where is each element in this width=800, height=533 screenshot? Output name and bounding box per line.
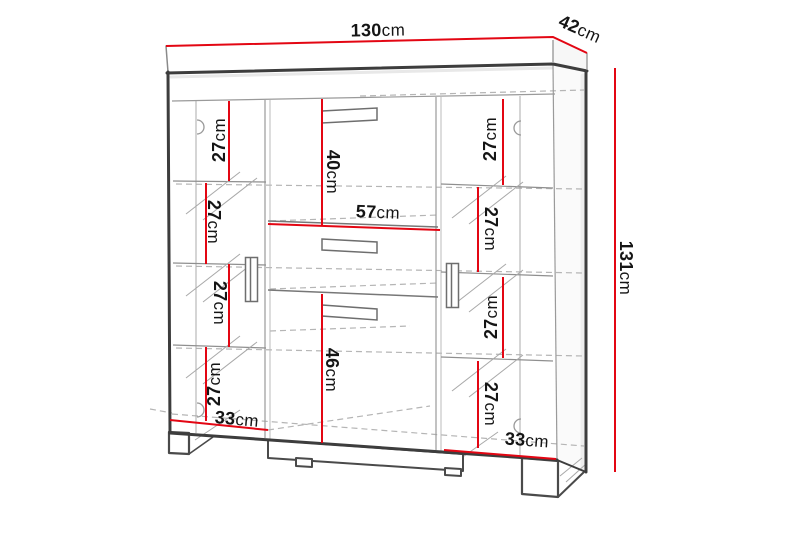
left-shelf-unit-4: cm [205, 362, 224, 386]
width-label: 130cm [351, 21, 406, 40]
plinth-foot-right [445, 468, 461, 476]
right-width-label: 33cm [504, 429, 549, 450]
height-value: 131 [616, 241, 636, 272]
plinth-foot-left [296, 458, 312, 467]
left-shelf-unit-2: cm [204, 220, 223, 244]
lower-middle-unit: cm [322, 368, 341, 392]
left-width-unit: cm [235, 410, 260, 431]
width-unit: cm [381, 21, 405, 40]
left-shelf-label-1: 27cm [210, 118, 228, 162]
right-shelf-label-1: 27cm [481, 117, 499, 161]
left-shelf-label-2: 27cm [205, 200, 223, 244]
right-door-handle [447, 264, 459, 308]
left-door-handle [246, 258, 258, 302]
left-shelf-label-3: 27cm [211, 281, 229, 325]
left-shelf-value-4: 27 [204, 386, 224, 407]
top-drawer-handle [322, 108, 377, 123]
left-shelf-value-2: 27 [204, 200, 224, 221]
height-label: 131cm [617, 241, 635, 296]
diagram-canvas: 130cm 42cm 131cm 40cm 57cm 46cm 33cm 33c… [0, 0, 800, 533]
lower-middle-label: 46cm [323, 348, 341, 392]
right-shelf-value-2: 27 [481, 207, 501, 228]
right-shelf-unit-3: cm [482, 295, 501, 319]
left-shelf-value-3: 27 [210, 281, 230, 302]
right-shelf-value-4: 27 [481, 382, 501, 403]
left-shelf-unit-3: cm [210, 301, 229, 325]
cabinet-line-drawing [0, 0, 800, 533]
left-shelf-label-4: 27cm [205, 362, 223, 406]
right-shelf-label-2: 27cm [482, 207, 500, 251]
right-shelf-label-4: 27cm [482, 382, 500, 426]
right-shelf-label-3: 27cm [482, 295, 500, 339]
upper-middle-label: 40cm [324, 150, 342, 194]
middle-drawer-handle [322, 239, 377, 253]
right-shelf-unit-2: cm [481, 227, 500, 251]
upper-middle-value: 40 [323, 150, 343, 171]
middle-width-unit: cm [376, 203, 400, 223]
right-width-unit: cm [525, 431, 550, 452]
right-shelf-value-1: 27 [480, 141, 500, 162]
right-width-value: 33 [504, 428, 526, 449]
right-shelf-value-3: 27 [481, 319, 501, 340]
left-shelf-unit-1: cm [210, 118, 229, 142]
lower-middle-value: 46 [322, 348, 342, 369]
left-width-label: 33cm [214, 408, 260, 430]
right-shelf-unit-4: cm [481, 402, 500, 426]
width-value: 130 [351, 20, 382, 41]
middle-width-label: 57cm [356, 202, 401, 222]
left-shelf-value-1: 27 [209, 142, 229, 163]
height-unit: cm [616, 272, 635, 296]
right-shelf-unit-1: cm [481, 117, 500, 141]
upper-middle-unit: cm [323, 170, 342, 194]
middle-width-value: 57 [356, 201, 377, 222]
left-width-value: 33 [214, 407, 236, 429]
